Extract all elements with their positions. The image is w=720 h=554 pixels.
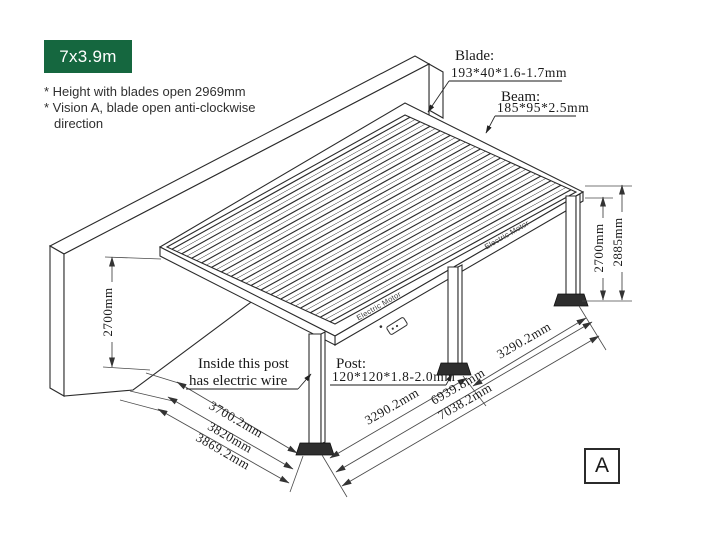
right-post (566, 196, 576, 296)
right-post-base (554, 294, 588, 306)
blade-callout-title: Blade: (455, 48, 494, 64)
note-line-2: * Vision A, blade open anti-clockwise (44, 100, 256, 116)
beam-leader-line (486, 116, 495, 133)
front-post-base (296, 443, 334, 455)
front-post (309, 334, 321, 444)
dim-wall-height: 2700mm (100, 287, 115, 336)
dim-total-height: 2885mm (610, 217, 625, 266)
blade-callout-spec: 193*40*1.6-1.7mm (451, 65, 567, 80)
size-badge-label: 7x3.9m (59, 47, 117, 67)
wire-note-line1: Inside this post (198, 356, 290, 372)
notes-block: * Height with blades open 2969mm * Visio… (44, 84, 256, 132)
beam-callout-spec: 185*95*2.5mm (497, 100, 589, 115)
note-line-1: * Height with blades open 2969mm (44, 84, 256, 100)
post-callout-spec: 120*120*1.8-2.0mm (332, 369, 455, 384)
diagram-canvas: 2700mm 2700mm 2885mm 3700.2mm 3820mm 386… (0, 0, 720, 554)
middle-post (448, 267, 458, 365)
wire-note-line2: has electric wire (189, 373, 288, 389)
note-line-3: direction (54, 116, 256, 132)
view-marker-box: A (584, 448, 620, 484)
size-badge: 7x3.9m (44, 40, 132, 73)
view-marker-letter: A (595, 454, 609, 478)
dim-post-height: 2700mm (591, 223, 606, 272)
dim-bay-left: 3290.2mm (362, 385, 421, 428)
